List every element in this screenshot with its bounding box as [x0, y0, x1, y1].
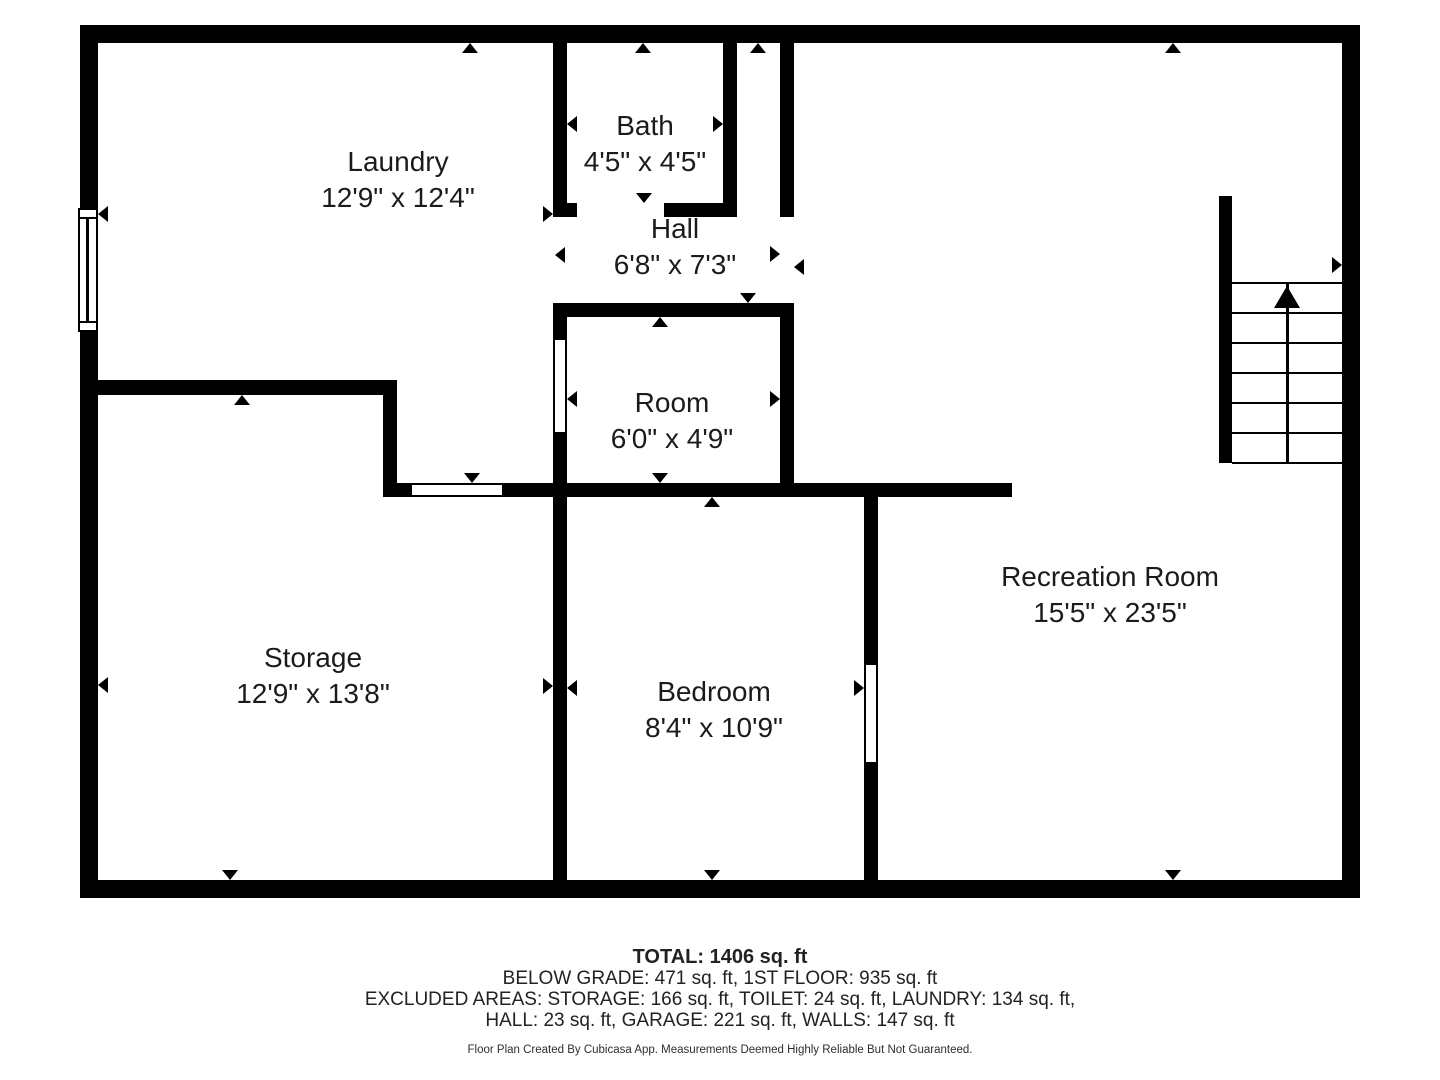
direction-arrow	[555, 247, 565, 263]
wall	[553, 303, 794, 317]
wall	[553, 203, 577, 217]
wall	[80, 880, 1360, 898]
door-opening	[553, 340, 567, 432]
room-name: Recreation Room	[1001, 559, 1219, 595]
room-label: Room6'0" x 4'9"	[611, 385, 733, 457]
summary-excluded-2: HALL: 23 sq. ft, GARAGE: 221 sq. ft, WAL…	[0, 1010, 1440, 1031]
room-dimensions: 6'8" x 7'3"	[614, 247, 736, 283]
direction-arrow	[222, 870, 238, 880]
door-opening	[412, 483, 502, 497]
direction-arrow	[750, 43, 766, 53]
direction-arrow	[1332, 257, 1342, 273]
summary-total: TOTAL: 1406 sq. ft	[0, 947, 1440, 968]
wall	[723, 43, 737, 217]
direction-arrow	[98, 206, 108, 222]
room-dimensions: 15'5" x 23'5"	[1001, 595, 1219, 631]
room-label: Hall6'8" x 7'3"	[614, 211, 736, 283]
room-label: Bath4'5" x 4'5"	[584, 108, 706, 180]
wall	[502, 483, 1012, 497]
room-dimensions: 8'4" x 10'9"	[645, 710, 783, 746]
wall	[80, 380, 397, 395]
direction-arrow	[543, 678, 553, 694]
direction-arrow	[794, 259, 804, 275]
room-name: Laundry	[321, 144, 475, 180]
direction-arrow	[635, 43, 651, 53]
direction-arrow	[567, 116, 577, 132]
direction-arrow	[740, 293, 756, 303]
wall	[864, 762, 878, 880]
wall	[553, 303, 567, 340]
direction-arrow	[234, 395, 250, 405]
room-dimensions: 12'9" x 12'4"	[321, 180, 475, 216]
room-dimensions: 6'0" x 4'9"	[611, 421, 733, 457]
wall	[80, 332, 98, 898]
disclaimer: Floor Plan Created By Cubicasa App. Meas…	[0, 1044, 1440, 1056]
direction-arrow	[636, 193, 652, 203]
direction-arrow	[652, 317, 668, 327]
room-label: Bedroom8'4" x 10'9"	[645, 674, 783, 746]
room-dimensions: 4'5" x 4'5"	[584, 144, 706, 180]
direction-arrow	[567, 680, 577, 696]
direction-arrow	[770, 391, 780, 407]
stair-divider-line	[1286, 283, 1289, 463]
room-name: Storage	[236, 640, 390, 676]
wall	[780, 303, 794, 497]
wall	[383, 380, 397, 497]
wall	[1219, 196, 1232, 463]
area-summary: TOTAL: 1406 sq. ft BELOW GRADE: 471 sq. …	[0, 947, 1440, 1031]
wall	[80, 25, 1360, 43]
door-opening	[864, 665, 878, 762]
direction-arrow	[652, 473, 668, 483]
direction-arrow	[1165, 870, 1181, 880]
direction-arrow	[713, 116, 723, 132]
wall	[780, 43, 794, 217]
floor-plan: TOTAL: 1406 sq. ft BELOW GRADE: 471 sq. …	[0, 0, 1440, 1080]
wall	[553, 43, 567, 217]
summary-excluded-1: EXCLUDED AREAS: STORAGE: 166 sq. ft, TOI…	[0, 989, 1440, 1010]
direction-arrow	[464, 473, 480, 483]
wall	[383, 483, 412, 497]
direction-arrow	[543, 206, 553, 222]
room-label: Storage12'9" x 13'8"	[236, 640, 390, 712]
room-name: Bath	[584, 108, 706, 144]
stair-up-arrow	[1274, 286, 1300, 308]
wall	[1342, 25, 1360, 898]
room-name: Hall	[614, 211, 736, 247]
direction-arrow	[854, 680, 864, 696]
direction-arrow	[462, 43, 478, 53]
room-label: Recreation Room15'5" x 23'5"	[1001, 559, 1219, 631]
room-label: Laundry12'9" x 12'4"	[321, 144, 475, 216]
wall	[80, 25, 98, 208]
direction-arrow	[704, 497, 720, 507]
wall	[553, 483, 567, 880]
room-name: Bedroom	[645, 674, 783, 710]
direction-arrow	[567, 391, 577, 407]
direction-arrow	[704, 870, 720, 880]
direction-arrow	[98, 677, 108, 693]
direction-arrow	[1165, 43, 1181, 53]
wall	[864, 483, 878, 665]
room-dimensions: 12'9" x 13'8"	[236, 676, 390, 712]
room-name: Room	[611, 385, 733, 421]
window-glass-line	[86, 217, 89, 323]
direction-arrow	[770, 246, 780, 262]
summary-floors: BELOW GRADE: 471 sq. ft, 1ST FLOOR: 935 …	[0, 968, 1440, 989]
wall	[553, 432, 567, 487]
